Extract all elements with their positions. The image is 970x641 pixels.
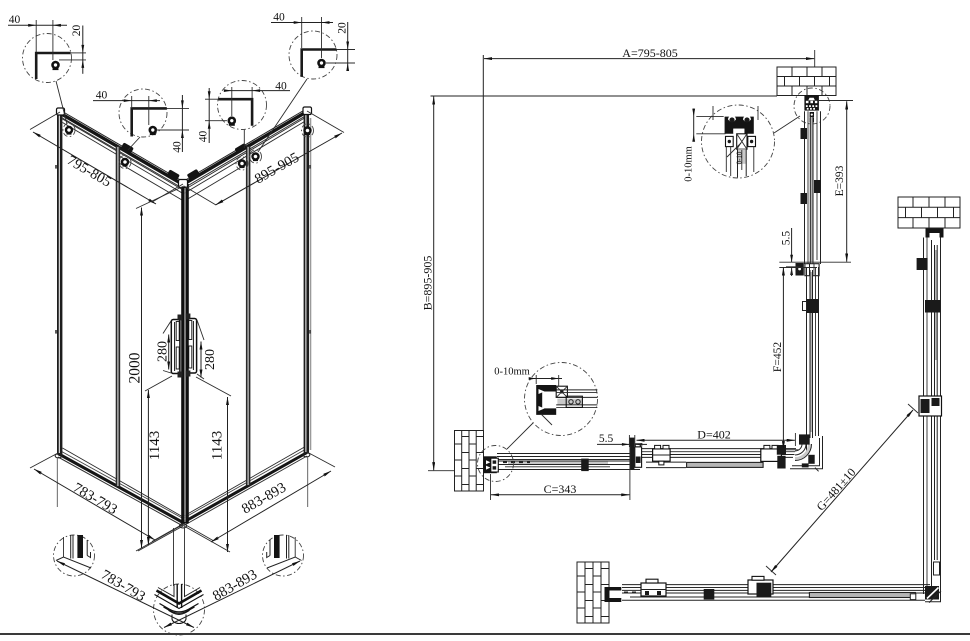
svg-text:0-10mm: 0-10mm <box>684 146 695 182</box>
svg-text:40: 40 <box>96 90 108 102</box>
svg-text:0-10mm: 0-10mm <box>494 367 530 378</box>
svg-text:1143: 1143 <box>147 431 163 460</box>
svg-text:40: 40 <box>171 141 183 153</box>
svg-text:E=393: E=393 <box>834 165 846 196</box>
svg-text:C=343: C=343 <box>544 482 577 496</box>
svg-text:5.5: 5.5 <box>599 433 614 445</box>
svg-text:1143: 1143 <box>210 431 226 460</box>
svg-text:A=795-805: A=795-805 <box>622 46 677 60</box>
svg-text:20: 20 <box>336 22 348 34</box>
svg-text:D=402: D=402 <box>697 428 730 442</box>
svg-text:40: 40 <box>9 14 21 26</box>
svg-text:40: 40 <box>197 131 209 143</box>
svg-text:5.5: 5.5 <box>781 231 793 246</box>
svg-text:2000: 2000 <box>127 352 144 383</box>
svg-text:280: 280 <box>203 349 218 370</box>
svg-text:280: 280 <box>155 341 170 362</box>
svg-text:F=452: F=452 <box>772 342 784 372</box>
svg-text:B=895-905: B=895-905 <box>421 256 435 311</box>
svg-text:40: 40 <box>273 12 285 24</box>
svg-text:40: 40 <box>275 81 287 93</box>
svg-text:0-10: 0-10 <box>736 151 744 164</box>
svg-text:20: 20 <box>71 25 83 37</box>
